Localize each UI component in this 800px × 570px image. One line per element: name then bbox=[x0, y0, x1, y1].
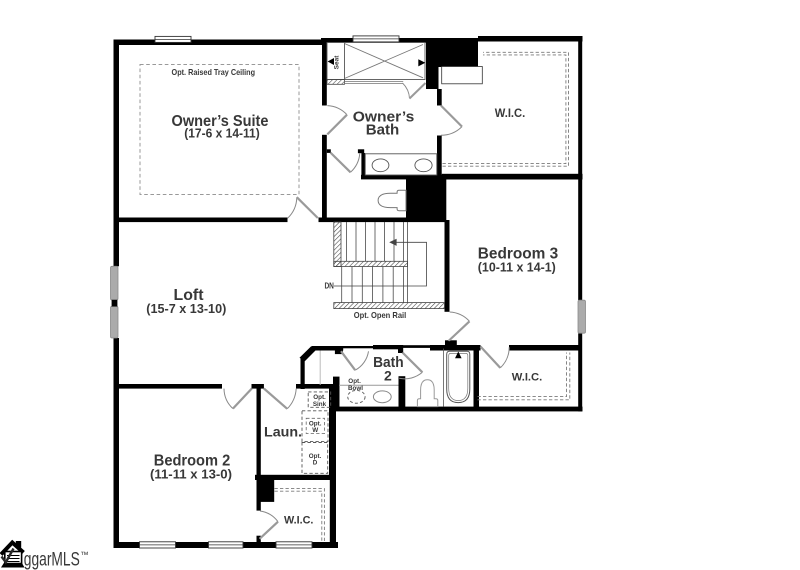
svg-text:Opt.: Opt. bbox=[348, 378, 361, 385]
svg-text:W.I.C.: W.I.C. bbox=[512, 371, 543, 383]
svg-text:W.I.C.: W.I.C. bbox=[495, 108, 526, 120]
svg-text:(15-7 x 13-10): (15-7 x 13-10) bbox=[146, 301, 226, 316]
svg-text:Seat: Seat bbox=[334, 55, 341, 70]
svg-text:W.I.C.: W.I.C. bbox=[284, 515, 314, 527]
svg-text:Laun.: Laun. bbox=[264, 423, 302, 439]
svg-text:™: ™ bbox=[80, 549, 89, 559]
svg-text:(10-11 x 14-1): (10-11 x 14-1) bbox=[478, 260, 556, 275]
svg-text:ggarMLS: ggarMLS bbox=[24, 549, 80, 570]
svg-text:Sink: Sink bbox=[313, 401, 327, 408]
svg-text:Bath: Bath bbox=[366, 123, 400, 139]
svg-text:(11-11 x 13-0): (11-11 x 13-0) bbox=[150, 466, 232, 481]
svg-text:DN: DN bbox=[324, 282, 334, 291]
svg-text:2: 2 bbox=[384, 368, 392, 384]
svg-text:W: W bbox=[312, 427, 318, 434]
svg-text:D: D bbox=[313, 460, 318, 467]
svg-text:Bowl: Bowl bbox=[348, 385, 363, 392]
svg-text:(17-6 x 14-11): (17-6 x 14-11) bbox=[184, 126, 260, 141]
svg-text:Opt. Open Rail: Opt. Open Rail bbox=[354, 311, 407, 320]
svg-text:Opt. Raised Tray Ceiling: Opt. Raised Tray Ceiling bbox=[172, 68, 256, 77]
